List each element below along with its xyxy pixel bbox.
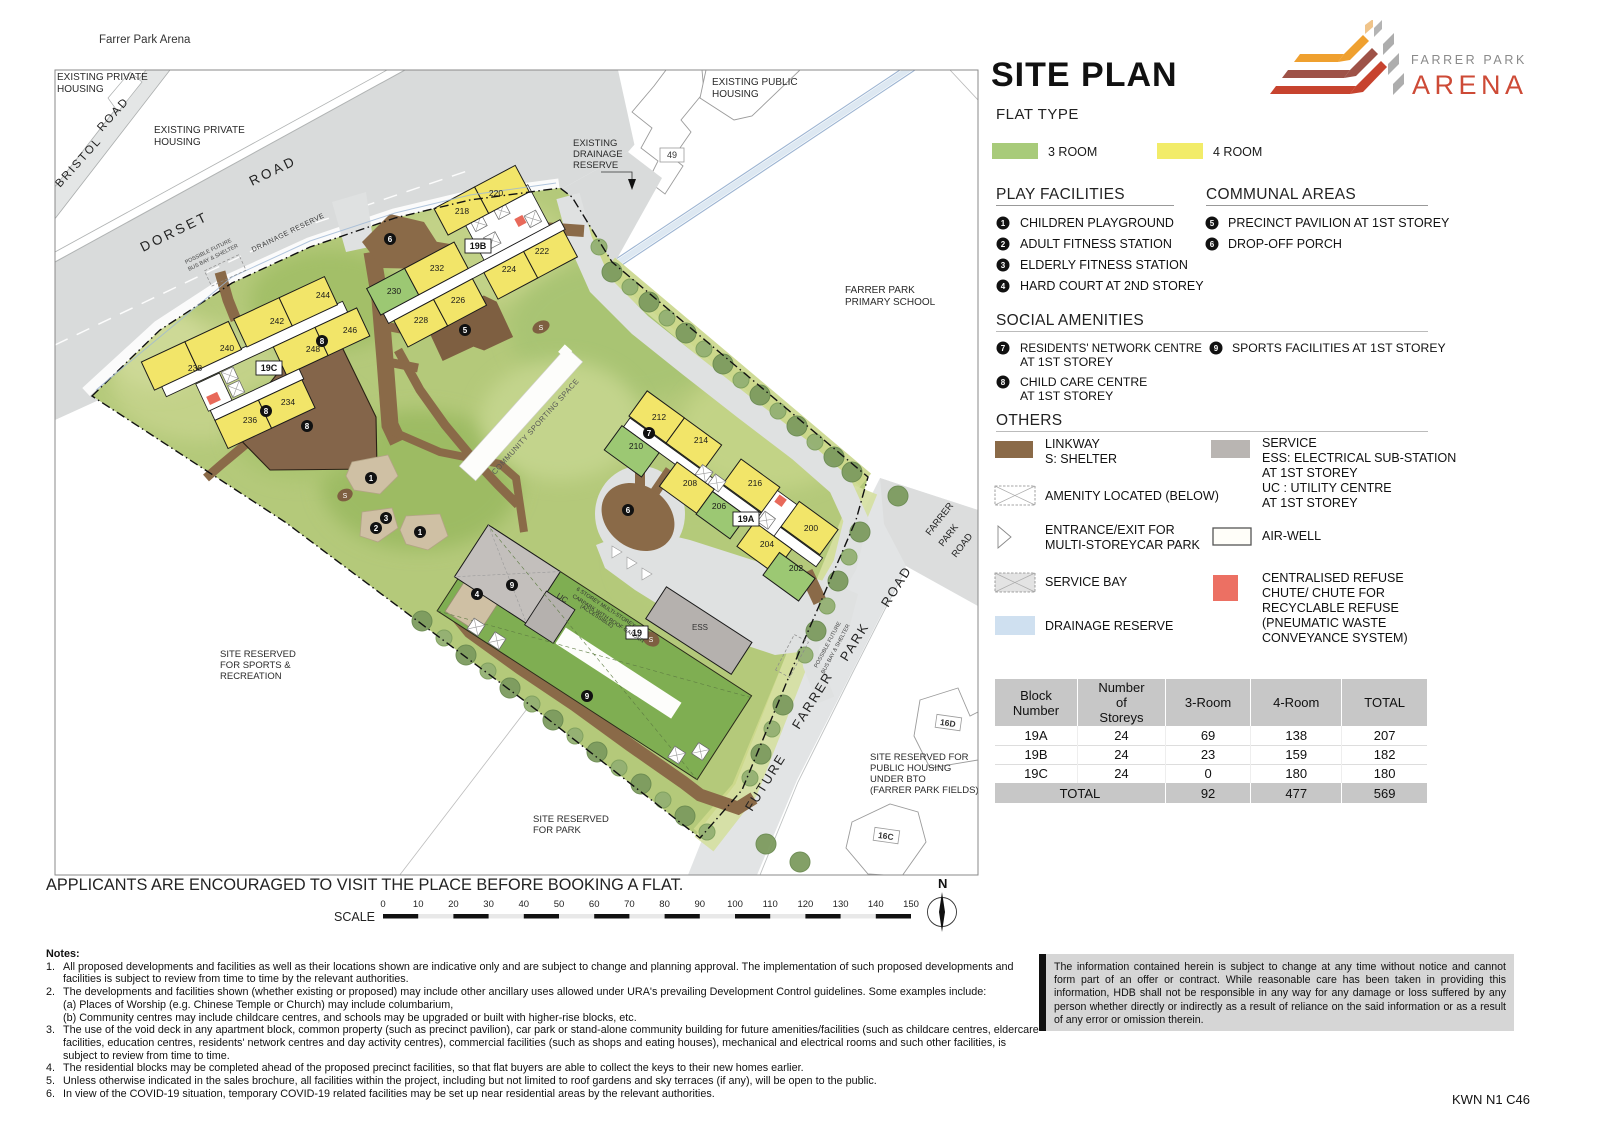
svg-text:HOUSING: HOUSING bbox=[154, 137, 201, 148]
svg-text:AIR-WELL: AIR-WELL bbox=[1262, 529, 1321, 543]
svg-text:RESERVE: RESERVE bbox=[573, 160, 618, 171]
svg-text:S: S bbox=[343, 493, 348, 500]
svg-text:DRAINAGE RESERVE: DRAINAGE RESERVE bbox=[1045, 619, 1173, 633]
svg-text:EXISTING PRIVATE: EXISTING PRIVATE bbox=[154, 125, 245, 136]
svg-text:LINKWAY: LINKWAY bbox=[1045, 438, 1101, 451]
svg-text:244: 244 bbox=[316, 290, 330, 300]
svg-text:RECYCLABLE REFUSE: RECYCLABLE REFUSE bbox=[1262, 601, 1399, 615]
svg-text:SERVICE: SERVICE bbox=[1262, 438, 1317, 450]
svg-text:50: 50 bbox=[554, 899, 565, 910]
svg-text:218: 218 bbox=[455, 206, 469, 216]
svg-text:3: 3 bbox=[1001, 261, 1006, 270]
svg-text:AMENITY LOCATED (BELOW): AMENITY LOCATED (BELOW) bbox=[1045, 489, 1219, 503]
svg-text:240: 240 bbox=[220, 343, 234, 353]
svg-text:AT 1ST STOREY: AT 1ST STOREY bbox=[1262, 466, 1358, 480]
svg-text:PRECINCT PAVILION AT 1ST STORE: PRECINCT PAVILION AT 1ST STOREY bbox=[1228, 216, 1450, 230]
svg-text:70: 70 bbox=[624, 899, 635, 910]
svg-text:FOR SPORTS &: FOR SPORTS & bbox=[220, 660, 291, 671]
svg-text:9: 9 bbox=[510, 581, 515, 590]
svg-text:CHUTE/ CHUTE FOR: CHUTE/ CHUTE FOR bbox=[1262, 586, 1385, 600]
svg-text:130: 130 bbox=[833, 899, 849, 910]
svg-text:FARRER PARK: FARRER PARK bbox=[845, 285, 915, 296]
svg-text:204: 204 bbox=[760, 539, 774, 549]
svg-text:222: 222 bbox=[535, 246, 549, 256]
svg-text:238: 238 bbox=[188, 363, 202, 373]
svg-text:140: 140 bbox=[868, 899, 884, 910]
svg-text:UC : UTILITY CENTRE: UC : UTILITY CENTRE bbox=[1262, 481, 1392, 495]
svg-text:200: 200 bbox=[804, 523, 818, 533]
svg-text:236: 236 bbox=[243, 415, 257, 425]
svg-text:MULTI-STOREYCAR PARK: MULTI-STOREYCAR PARK bbox=[1045, 538, 1201, 552]
svg-text:224: 224 bbox=[502, 264, 516, 274]
svg-text:8: 8 bbox=[1001, 378, 1006, 387]
svg-text:6: 6 bbox=[388, 235, 393, 244]
svg-text:HARD COURT AT 2ND STOREY: HARD COURT AT 2ND STOREY bbox=[1020, 279, 1204, 293]
svg-text:DROP-OFF PORCH: DROP-OFF PORCH bbox=[1228, 237, 1342, 251]
svg-text:6: 6 bbox=[1210, 240, 1215, 249]
svg-text:230: 230 bbox=[387, 286, 401, 296]
svg-text:6: 6 bbox=[626, 506, 631, 515]
svg-text:ESS: ESS bbox=[692, 623, 708, 632]
svg-text:4: 4 bbox=[1001, 282, 1006, 291]
svg-text:ESS: ELECTRICAL SUB-STATION: ESS: ELECTRICAL SUB-STATION bbox=[1262, 451, 1456, 465]
svg-text:19C: 19C bbox=[261, 363, 278, 373]
svg-text:RESIDENTS' NETWORK CENTRE: RESIDENTS' NETWORK CENTRE bbox=[1020, 342, 1202, 355]
svg-text:UNDER BTO: UNDER BTO bbox=[870, 774, 926, 785]
svg-text:SITE RESERVED: SITE RESERVED bbox=[220, 649, 296, 660]
svg-text:19A: 19A bbox=[738, 514, 755, 524]
svg-text:220: 220 bbox=[489, 188, 503, 198]
svg-text:7: 7 bbox=[1001, 344, 1006, 353]
svg-text:10: 10 bbox=[413, 899, 424, 910]
svg-text:CONVEYANCE SYSTEM): CONVEYANCE SYSTEM) bbox=[1262, 631, 1408, 645]
svg-text:9: 9 bbox=[585, 692, 590, 701]
svg-text:0: 0 bbox=[380, 899, 385, 910]
svg-text:1: 1 bbox=[418, 528, 423, 537]
svg-text:S: S bbox=[539, 325, 544, 332]
svg-text:AT 1ST STOREY: AT 1ST STOREY bbox=[1262, 496, 1358, 510]
svg-text:9: 9 bbox=[1214, 344, 1219, 353]
svg-text:EXISTING PUBLIC: EXISTING PUBLIC bbox=[712, 77, 798, 88]
svg-text:(FARRER PARK FIELDS): (FARRER PARK FIELDS) bbox=[870, 785, 979, 796]
svg-text:80: 80 bbox=[659, 899, 670, 910]
svg-text:226: 226 bbox=[451, 295, 465, 305]
svg-text:206: 206 bbox=[712, 501, 726, 511]
svg-text:242: 242 bbox=[270, 316, 284, 326]
svg-text:202: 202 bbox=[789, 563, 803, 573]
svg-text:S: S bbox=[649, 637, 654, 644]
svg-text:110: 110 bbox=[763, 899, 778, 910]
svg-text:HOUSING: HOUSING bbox=[57, 84, 104, 95]
svg-text:ELDERLY FITNESS STATION: ELDERLY FITNESS STATION bbox=[1020, 258, 1188, 272]
svg-text:216: 216 bbox=[748, 478, 762, 488]
svg-text:208: 208 bbox=[683, 478, 697, 488]
svg-text:150: 150 bbox=[903, 899, 919, 910]
svg-text:3: 3 bbox=[384, 514, 389, 523]
svg-text:CHILDREN PLAYGROUND: CHILDREN PLAYGROUND bbox=[1020, 216, 1174, 230]
svg-text:RECREATION: RECREATION bbox=[220, 671, 282, 682]
svg-text:210: 210 bbox=[629, 441, 643, 451]
svg-text:7: 7 bbox=[647, 429, 652, 438]
svg-text:40: 40 bbox=[519, 899, 530, 910]
svg-text:SERVICE BAY: SERVICE BAY bbox=[1045, 575, 1128, 589]
svg-text:S: SHELTER: S: SHELTER bbox=[1045, 452, 1117, 466]
svg-text:SPORTS FACILITIES AT 1ST STORE: SPORTS FACILITIES AT 1ST STOREY bbox=[1232, 341, 1446, 355]
svg-text:246: 246 bbox=[343, 325, 357, 335]
svg-text:30: 30 bbox=[483, 899, 494, 910]
svg-text:4: 4 bbox=[475, 590, 480, 599]
svg-text:EXISTING: EXISTING bbox=[573, 138, 617, 149]
svg-text:FARRER PARK: FARRER PARK bbox=[1411, 53, 1527, 67]
svg-text:19B: 19B bbox=[470, 241, 487, 251]
svg-text:60: 60 bbox=[589, 899, 600, 910]
svg-text:100: 100 bbox=[727, 899, 743, 910]
svg-text:228: 228 bbox=[414, 315, 428, 325]
svg-text:PRIMARY SCHOOL: PRIMARY SCHOOL bbox=[845, 297, 936, 308]
svg-text:1: 1 bbox=[369, 474, 374, 483]
svg-text:(PNEUMATIC WASTE: (PNEUMATIC WASTE bbox=[1262, 616, 1386, 630]
svg-text:49: 49 bbox=[667, 150, 677, 160]
svg-text:5: 5 bbox=[463, 326, 468, 335]
svg-text:DRAINAGE: DRAINAGE bbox=[573, 149, 623, 160]
svg-text:8: 8 bbox=[320, 337, 325, 346]
svg-text:FOR PARK: FOR PARK bbox=[533, 825, 582, 836]
svg-text:ADULT FITNESS STATION: ADULT FITNESS STATION bbox=[1020, 237, 1172, 251]
svg-text:234: 234 bbox=[281, 397, 295, 407]
svg-text:214: 214 bbox=[694, 435, 708, 445]
svg-text:SITE RESERVED: SITE RESERVED bbox=[533, 814, 609, 825]
svg-text:5: 5 bbox=[1210, 219, 1215, 228]
svg-text:1: 1 bbox=[1001, 219, 1006, 228]
svg-text:8: 8 bbox=[305, 422, 310, 431]
svg-text:8: 8 bbox=[264, 407, 269, 416]
svg-text:EXISTING PRIVATE: EXISTING PRIVATE bbox=[57, 72, 148, 83]
svg-text:212: 212 bbox=[652, 412, 666, 422]
svg-text:ARENA: ARENA bbox=[1412, 70, 1528, 100]
svg-text:SITE RESERVED FOR: SITE RESERVED FOR bbox=[870, 752, 969, 763]
svg-text:20: 20 bbox=[448, 899, 459, 910]
svg-text:CENTRALISED REFUSE: CENTRALISED REFUSE bbox=[1262, 571, 1404, 585]
svg-text:AT 1ST STOREY: AT 1ST STOREY bbox=[1020, 389, 1113, 403]
svg-text:CHILD CARE CENTRE: CHILD CARE CENTRE bbox=[1020, 375, 1147, 389]
svg-text:N: N bbox=[938, 876, 947, 891]
svg-text:2: 2 bbox=[374, 524, 379, 533]
svg-text:232: 232 bbox=[430, 263, 444, 273]
svg-text:AT 1ST STOREY: AT 1ST STOREY bbox=[1020, 355, 1113, 369]
svg-text:HOUSING: HOUSING bbox=[712, 89, 759, 100]
svg-text:ENTRANCE/EXIT FOR: ENTRANCE/EXIT FOR bbox=[1045, 523, 1175, 537]
svg-text:120: 120 bbox=[797, 899, 813, 910]
svg-text:2: 2 bbox=[1001, 240, 1006, 249]
svg-text:PUBLIC HOUSING: PUBLIC HOUSING bbox=[870, 763, 951, 774]
svg-text:90: 90 bbox=[695, 899, 706, 910]
